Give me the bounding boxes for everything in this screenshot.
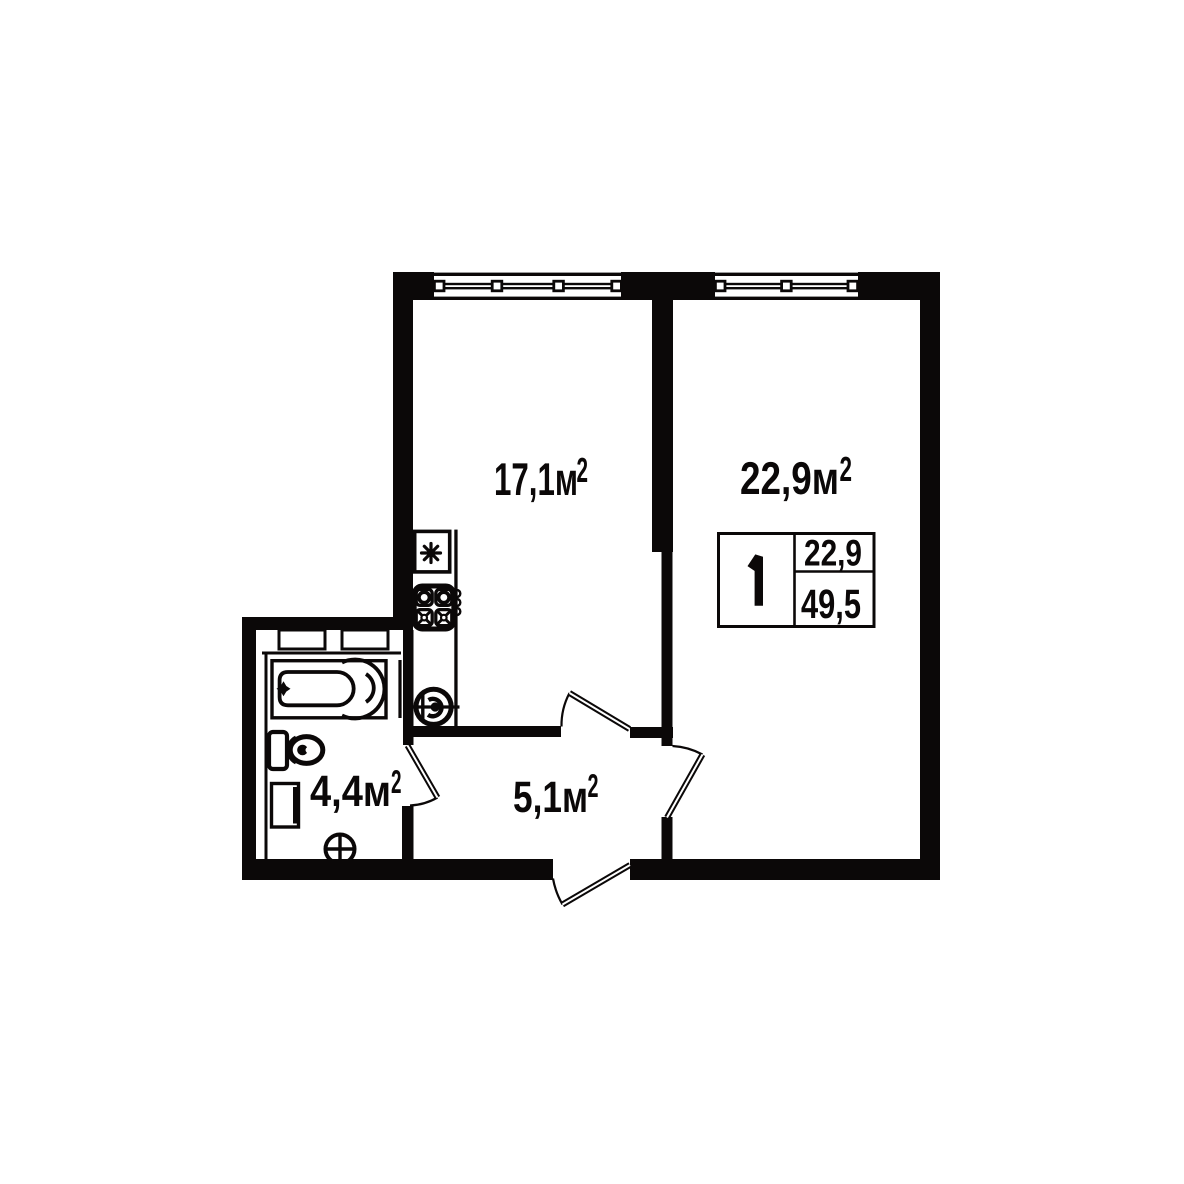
svg-text:2: 2: [588, 767, 599, 804]
svg-text:22,9м: 22,9м: [740, 452, 839, 504]
svg-text:2: 2: [391, 763, 402, 800]
svg-text:2: 2: [577, 451, 589, 490]
svg-text:17,1м: 17,1м: [494, 453, 578, 505]
svg-text:22,9: 22,9: [804, 533, 862, 574]
svg-text:2: 2: [840, 450, 853, 489]
svg-text:4,4м: 4,4м: [310, 767, 391, 816]
svg-text:49,5: 49,5: [801, 581, 861, 627]
svg-text:5,1м: 5,1м: [513, 773, 588, 822]
